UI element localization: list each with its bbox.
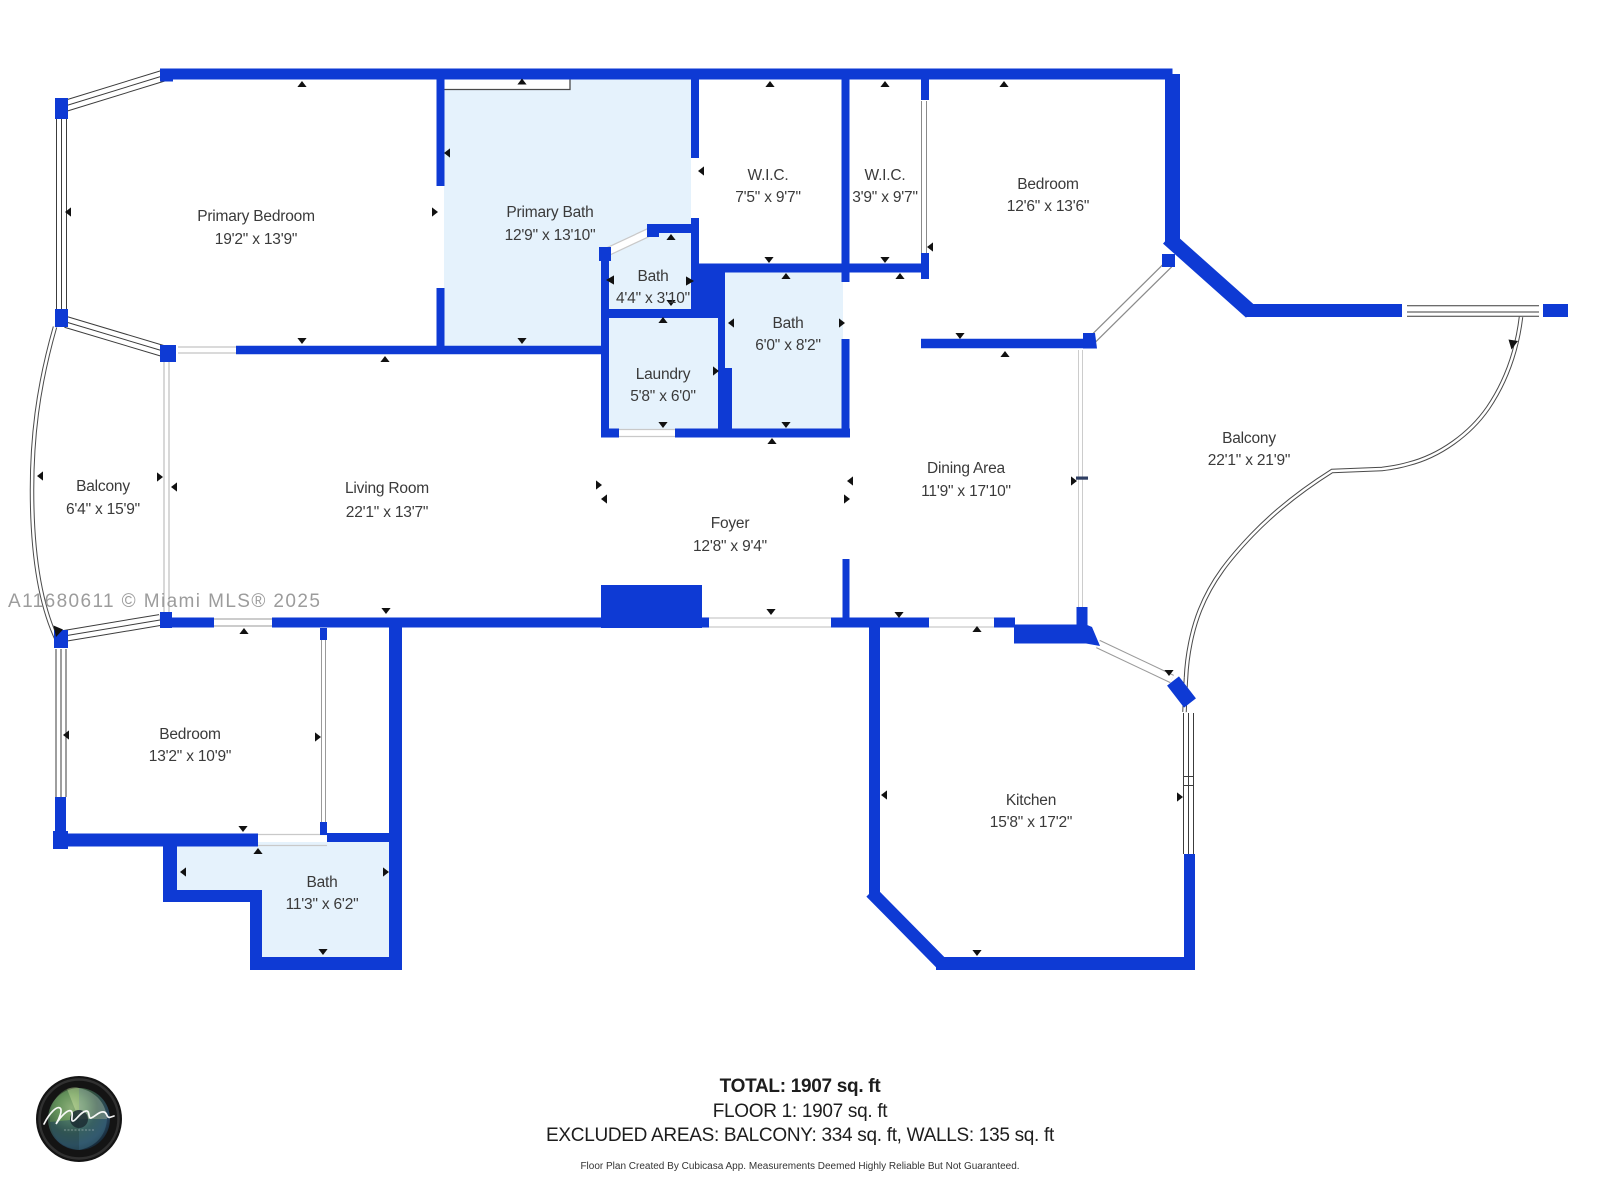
svg-text:Kitchen: Kitchen — [1006, 792, 1056, 809]
svg-text:Dining Area: Dining Area — [927, 460, 1006, 477]
svg-text:Foyer: Foyer — [711, 515, 750, 532]
svg-text:EXCLUDED AREAS: BALCONY: 334 s: EXCLUDED AREAS: BALCONY: 334 sq. ft, WAL… — [546, 1125, 1055, 1146]
svg-text:Primary Bath: Primary Bath — [506, 204, 593, 221]
svg-text:Floor Plan Created By Cubicasa: Floor Plan Created By Cubicasa App. Meas… — [580, 1161, 1019, 1172]
svg-text:Balcony: Balcony — [1222, 430, 1276, 447]
svg-text:Bedroom: Bedroom — [159, 726, 221, 743]
svg-text:Bath: Bath — [306, 874, 337, 891]
svg-text:22'1" x 21'9": 22'1" x 21'9" — [1208, 452, 1290, 469]
svg-text:15'8" x 17'2": 15'8" x 17'2" — [990, 814, 1072, 831]
svg-text:11'3" x 6'2": 11'3" x 6'2" — [286, 896, 359, 913]
svg-text:Primary Bedroom: Primary Bedroom — [197, 208, 315, 225]
svg-text:W.I.C.: W.I.C. — [865, 167, 906, 184]
svg-text:12'8" x 9'4": 12'8" x 9'4" — [693, 538, 767, 555]
svg-text:13'2" x 10'9": 13'2" x 10'9" — [149, 748, 231, 765]
svg-text:Laundry: Laundry — [636, 366, 691, 383]
svg-text:3'9" x 9'7": 3'9" x 9'7" — [852, 189, 918, 206]
svg-text:FLOOR 1: 1907 sq. ft: FLOOR 1: 1907 sq. ft — [713, 1101, 889, 1122]
svg-text:4'4" x 3'10": 4'4" x 3'10" — [616, 290, 690, 307]
svg-text:A11680611 © Miami MLS® 2025: A11680611 © Miami MLS® 2025 — [8, 591, 321, 612]
svg-text:22'1" x 13'7": 22'1" x 13'7" — [346, 504, 428, 521]
svg-text:19'2" x 13'9": 19'2" x 13'9" — [215, 231, 297, 248]
svg-text:12'9" x 13'10": 12'9" x 13'10" — [505, 227, 596, 244]
svg-text:W.I.C.: W.I.C. — [748, 167, 789, 184]
svg-text:Balcony: Balcony — [76, 478, 130, 495]
svg-text:6'4" x 15'9": 6'4" x 15'9" — [66, 501, 140, 518]
svg-text:Living Room: Living Room — [345, 480, 429, 497]
svg-text:5'8" x 6'0": 5'8" x 6'0" — [630, 388, 696, 405]
svg-text:Bath: Bath — [772, 315, 803, 332]
svg-text:7'5" x 9'7": 7'5" x 9'7" — [735, 189, 801, 206]
svg-text:6'0" x 8'2": 6'0" x 8'2" — [755, 337, 821, 354]
svg-text:TOTAL: 1907 sq. ft: TOTAL: 1907 sq. ft — [720, 1076, 882, 1097]
svg-text:Bath: Bath — [637, 268, 668, 285]
svg-text:12'6" x 13'6": 12'6" x 13'6" — [1007, 198, 1089, 215]
svg-text:11'9" x 17'10": 11'9" x 17'10" — [921, 483, 1011, 500]
svg-text:Bedroom: Bedroom — [1017, 176, 1079, 193]
